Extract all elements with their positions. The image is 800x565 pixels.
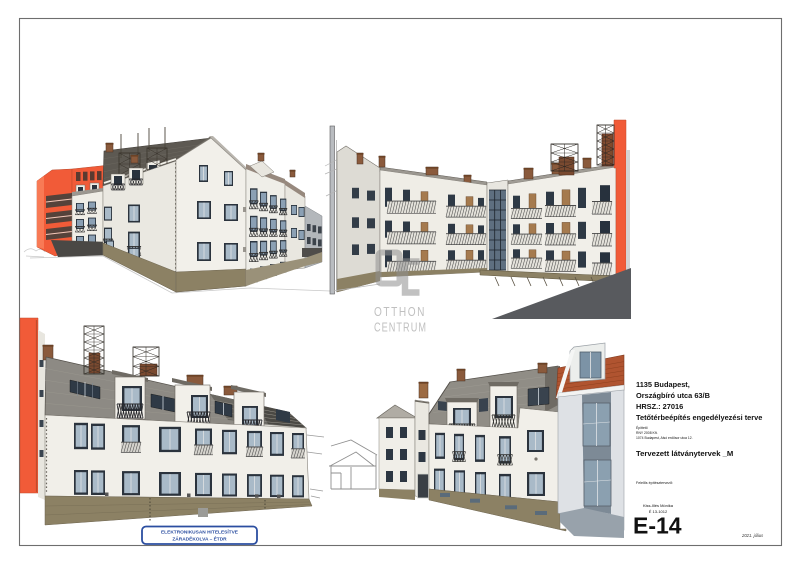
svg-text:1074 Budapest, Alsó erdősor ut: 1074 Budapest, Alsó erdősor utca 12. bbox=[636, 436, 693, 440]
svg-text:CENTRUM: CENTRUM bbox=[374, 320, 427, 335]
svg-text:2021. július: 2021. július bbox=[741, 533, 764, 538]
svg-text:Építtető: Építtető bbox=[636, 425, 648, 430]
svg-text:Országbíró utca 63/B: Országbíró utca 63/B bbox=[636, 391, 710, 400]
svg-text:E-14: E-14 bbox=[633, 513, 682, 539]
svg-text:Tervezett látványtervek _M: Tervezett látványtervek _M bbox=[636, 449, 733, 458]
svg-text:Kiss-Illés Mónika: Kiss-Illés Mónika bbox=[643, 503, 674, 508]
svg-text:1135 Budapest,: 1135 Budapest, bbox=[636, 380, 690, 389]
svg-text:Tetőtérbeépítés engedélyezési: Tetőtérbeépítés engedélyezési terve bbox=[636, 413, 762, 422]
svg-text:HRSZ.: 27016: HRSZ.: 27016 bbox=[636, 402, 683, 411]
svg-text:OTTHON: OTTHON bbox=[374, 304, 426, 319]
svg-text:Felelős építésztervező:: Felelős építésztervező: bbox=[636, 481, 673, 485]
svg-text:RNY 2008 Kft.: RNY 2008 Kft. bbox=[636, 431, 658, 435]
